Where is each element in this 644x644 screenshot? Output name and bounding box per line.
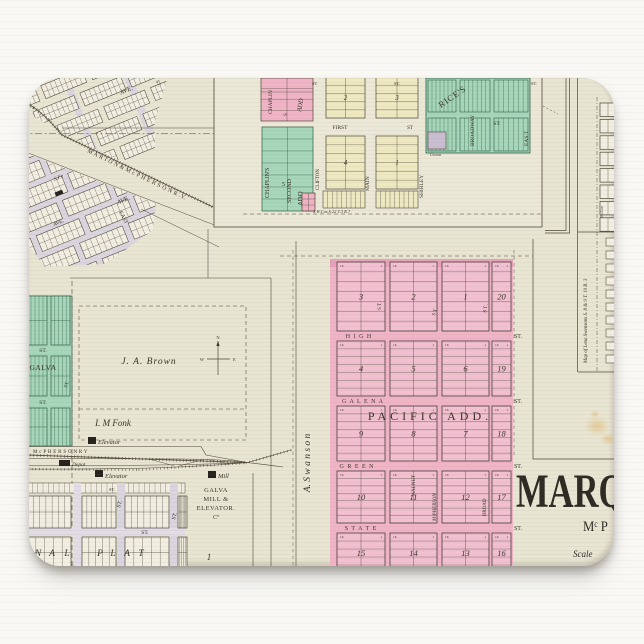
svg-text:16: 16 bbox=[340, 264, 344, 268]
svg-text:Scale: Scale bbox=[573, 549, 593, 559]
svg-text:ST.: ST. bbox=[141, 530, 149, 536]
svg-text:Union: Union bbox=[430, 152, 442, 157]
svg-text:EAS T: EAS T bbox=[524, 130, 530, 146]
svg-text:N: N bbox=[216, 335, 220, 340]
svg-text:19: 19 bbox=[497, 364, 506, 374]
svg-text:SHIRLEY: SHIRLEY bbox=[419, 175, 425, 198]
svg-text:15: 15 bbox=[357, 548, 366, 558]
svg-text:ST.: ST. bbox=[109, 487, 115, 492]
svg-text:CLIFTON: CLIFTON bbox=[316, 169, 321, 190]
svg-text:BROAD: BROAD bbox=[483, 498, 488, 516]
svg-text:16: 16 bbox=[393, 343, 397, 347]
svg-text:ST.: ST. bbox=[493, 121, 501, 127]
svg-text:T: T bbox=[138, 549, 144, 559]
svg-text:16: 16 bbox=[497, 548, 506, 558]
svg-text:3: 3 bbox=[394, 94, 399, 102]
svg-text:1: 1 bbox=[432, 535, 434, 539]
svg-text:16: 16 bbox=[495, 264, 499, 268]
svg-text:S.W.Cor.S.22 T.3 R.7: S.W.Cor.S.22 T.3 R.7 bbox=[313, 209, 351, 214]
svg-text:1: 1 bbox=[395, 159, 399, 167]
svg-text:ST.: ST. bbox=[394, 81, 400, 86]
svg-text:1: 1 bbox=[463, 292, 467, 302]
svg-text:1: 1 bbox=[506, 408, 508, 412]
svg-text:1: 1 bbox=[380, 343, 382, 347]
svg-text:16: 16 bbox=[495, 343, 499, 347]
svg-text:16: 16 bbox=[495, 535, 499, 539]
svg-text:16: 16 bbox=[445, 473, 449, 477]
svg-text:G R E E N: G R E E N bbox=[340, 464, 375, 470]
svg-text:MARQU: MARQU bbox=[516, 466, 614, 519]
svg-text:A. S w a n s o n: A. S w a n s o n bbox=[303, 433, 313, 493]
svg-text:16: 16 bbox=[340, 473, 344, 477]
svg-text:1: 1 bbox=[506, 264, 508, 268]
svg-text:CHAPLIN: CHAPLIN bbox=[268, 90, 274, 114]
svg-text:16: 16 bbox=[393, 264, 397, 268]
svg-text:MAIN: MAIN bbox=[365, 176, 371, 191]
svg-text:S: S bbox=[284, 113, 289, 116]
svg-text:WALNUT: WALNUT bbox=[412, 475, 417, 496]
svg-text:16: 16 bbox=[393, 535, 397, 539]
svg-text:BROADWAY: BROADWAY bbox=[470, 115, 476, 146]
svg-text:1: 1 bbox=[432, 264, 434, 268]
svg-text:20: 20 bbox=[497, 292, 506, 302]
svg-text:A: A bbox=[48, 549, 55, 559]
svg-text:No.Cor.: No.Cor. bbox=[599, 206, 604, 219]
svg-text:12: 12 bbox=[461, 492, 470, 502]
svg-text:ST.: ST. bbox=[39, 400, 47, 406]
svg-text:W: W bbox=[200, 357, 205, 362]
svg-text:Elevator: Elevator bbox=[104, 473, 128, 480]
svg-text:5: 5 bbox=[282, 182, 285, 188]
svg-text:1: 1 bbox=[484, 343, 486, 347]
svg-text:1: 1 bbox=[484, 473, 486, 477]
svg-text:Depot: Depot bbox=[71, 462, 86, 468]
svg-text:CHAPLIN'S: CHAPLIN'S bbox=[265, 168, 271, 198]
svg-text:1: 1 bbox=[207, 552, 212, 562]
svg-text:ST.: ST. bbox=[514, 399, 523, 405]
svg-text:1: 1 bbox=[506, 535, 508, 539]
svg-text:GALVA: GALVA bbox=[29, 363, 56, 372]
svg-text:SECOND: SECOND bbox=[287, 178, 293, 203]
svg-text:P: P bbox=[96, 549, 103, 559]
svg-text:G A L E N A: G A L E N A bbox=[342, 399, 384, 405]
svg-text:16: 16 bbox=[340, 408, 344, 412]
svg-text:PACIFIC ADD.: PACIFIC ADD. bbox=[368, 409, 492, 423]
svg-text:1: 1 bbox=[380, 473, 382, 477]
svg-text:13: 13 bbox=[461, 548, 470, 558]
svg-text:ST.: ST. bbox=[39, 348, 47, 354]
svg-text:MILL &: MILL & bbox=[203, 496, 228, 503]
svg-text:1: 1 bbox=[484, 535, 486, 539]
svg-text:A: A bbox=[123, 549, 130, 559]
svg-text:I. M Fonk: I. M Fonk bbox=[94, 418, 132, 428]
svg-text:16: 16 bbox=[495, 408, 499, 412]
svg-text:1: 1 bbox=[380, 264, 382, 268]
svg-text:1: 1 bbox=[432, 473, 434, 477]
svg-text:Mᶜ P: Mᶜ P bbox=[583, 519, 608, 535]
svg-text:16: 16 bbox=[495, 473, 499, 477]
svg-text:N: N bbox=[34, 549, 42, 559]
svg-text:2: 2 bbox=[344, 94, 348, 102]
svg-text:Elevator: Elevator bbox=[97, 439, 121, 446]
svg-text:16: 16 bbox=[445, 264, 449, 268]
svg-text:J. A. Brown: J. A. Brown bbox=[121, 357, 176, 367]
svg-text:E: E bbox=[233, 357, 236, 362]
svg-text:Cº: Cº bbox=[213, 515, 219, 521]
svg-text:FIRST: FIRST bbox=[333, 125, 349, 131]
svg-text:ST: ST bbox=[407, 126, 413, 131]
svg-text:1: 1 bbox=[484, 264, 486, 268]
svg-text:1: 1 bbox=[506, 343, 508, 347]
svg-text:14: 14 bbox=[409, 548, 418, 558]
svg-text:GALVA: GALVA bbox=[204, 487, 228, 494]
svg-text:ST.: ST. bbox=[531, 81, 537, 86]
svg-text:1: 1 bbox=[506, 473, 508, 477]
svg-text:S T .: S T . bbox=[378, 301, 383, 310]
svg-text:10: 10 bbox=[357, 492, 366, 502]
svg-text:16: 16 bbox=[445, 343, 449, 347]
svg-text:Map of Lena Swensons S. 8 & 9: Map of Lena Swensons S. 8 & 9 T. 19 R. 3 bbox=[584, 278, 589, 364]
svg-text:L: L bbox=[109, 549, 115, 559]
svg-text:16: 16 bbox=[393, 473, 397, 477]
svg-text:18: 18 bbox=[497, 429, 506, 439]
svg-text:ST.: ST. bbox=[514, 526, 523, 532]
svg-text:1: 1 bbox=[380, 535, 382, 539]
svg-text:MᶜPHERSON: MᶜPHERSON bbox=[433, 493, 438, 522]
svg-text:5: 5 bbox=[411, 364, 415, 374]
svg-text:ST.: ST. bbox=[514, 334, 523, 340]
svg-text:ELEVATOR.: ELEVATOR. bbox=[197, 505, 236, 512]
svg-text:Mill: Mill bbox=[217, 473, 229, 480]
svg-text:16: 16 bbox=[445, 535, 449, 539]
svg-text:S T A T E: S T A T E bbox=[345, 526, 378, 532]
svg-text:4: 4 bbox=[344, 159, 348, 167]
svg-text:3: 3 bbox=[358, 292, 363, 302]
svg-text:1: 1 bbox=[432, 343, 434, 347]
svg-text:ST.: ST. bbox=[312, 81, 318, 86]
svg-text:H I G H: H I G H bbox=[346, 334, 373, 340]
svg-text:16: 16 bbox=[340, 535, 344, 539]
svg-text:M c P H E R S O N R Y: M c P H E R S O N R Y bbox=[33, 450, 88, 455]
svg-text:17: 17 bbox=[497, 492, 506, 502]
svg-text:L: L bbox=[63, 549, 69, 559]
svg-text:16: 16 bbox=[340, 343, 344, 347]
